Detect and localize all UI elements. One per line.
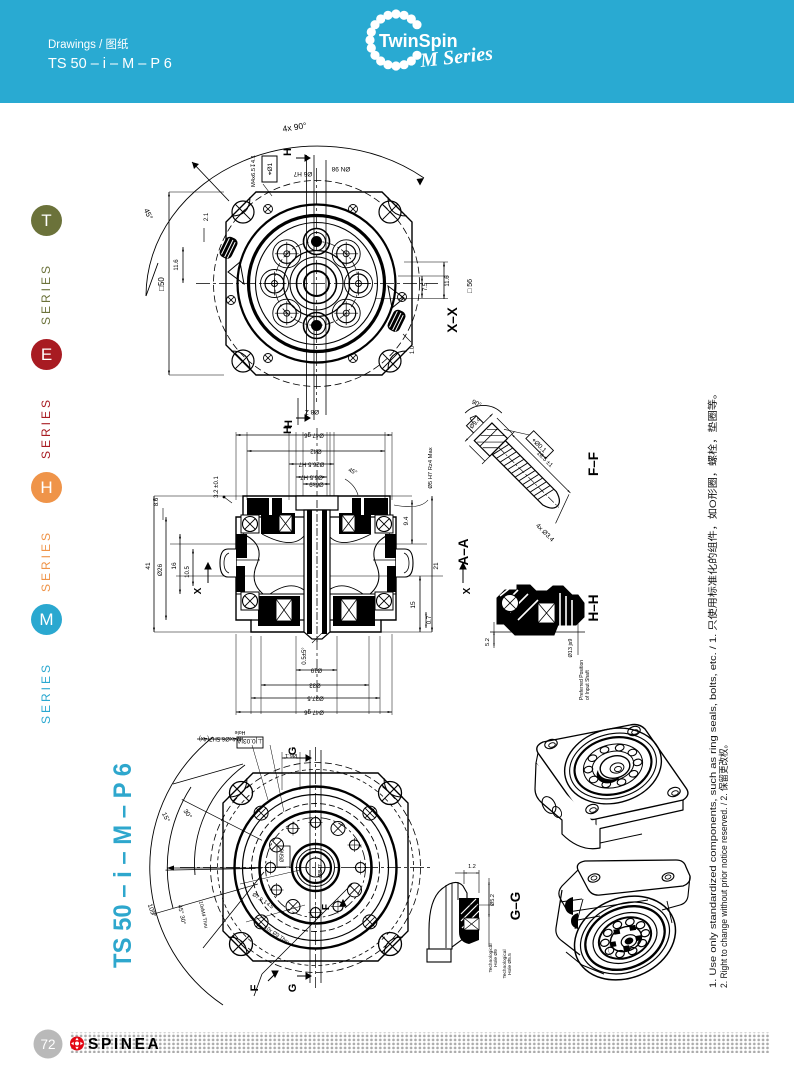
svg-text:Ø5.2: Ø5.2 <box>490 894 496 906</box>
svg-text:7.5: 7.5 <box>423 282 429 291</box>
svg-text:X: X <box>193 587 204 594</box>
svg-text:Ø8 Z: Ø8 Z <box>305 408 319 415</box>
svg-text:8.6: 8.6 <box>154 497 160 506</box>
svg-text:G: G <box>287 984 299 993</box>
svg-text:10xM4 Thru: 10xM4 Thru <box>197 901 209 929</box>
svg-text:H: H <box>283 420 295 428</box>
svg-text:M4x6.5↧4.1: M4x6.5↧4.1 <box>250 155 257 187</box>
svg-text:3.2 ±0.1: 3.2 ±0.1 <box>214 476 220 498</box>
svg-text:45° 30°: 45° 30° <box>176 904 186 925</box>
svg-text:11.6: 11.6 <box>445 275 451 287</box>
svg-text:⌖Ø1: ⌖Ø1 <box>267 162 274 175</box>
svg-text:16: 16 <box>171 562 178 570</box>
svg-text:15°: 15° <box>160 811 172 824</box>
svg-text:Hole: Hole <box>235 729 246 735</box>
svg-text:Ø13 js9: Ø13 js9 <box>568 639 574 658</box>
svg-text:1. Use only standardized compo: 1. Use only standardized components, suc… <box>707 388 719 988</box>
svg-text:10x Ø3 Thru: 10x Ø3 Thru <box>263 925 290 946</box>
svg-text:2.1: 2.1 <box>204 212 210 221</box>
svg-text:5.2: 5.2 <box>485 638 491 646</box>
svg-text:Ø33: Ø33 <box>309 682 321 688</box>
svg-text:105°: 105° <box>146 903 158 919</box>
svg-text:Ø9.4: Ø9.4 <box>469 416 483 430</box>
svg-text:41: 41 <box>145 562 152 570</box>
svg-text:F: F <box>249 984 261 991</box>
svg-text:G–G: G–G <box>508 892 523 921</box>
svg-text:30°: 30° <box>182 808 194 821</box>
svg-text:4x 90°: 4x 90° <box>282 120 307 134</box>
svg-text:Ø47 g6: Ø47 g6 <box>303 432 323 438</box>
svg-text:10.5: 10.5 <box>185 566 191 578</box>
svg-text:2. Right to change without pri: 2. Right to change without prior notice … <box>718 740 730 988</box>
svg-text:ØN 98: ØN 98 <box>331 165 350 172</box>
svg-text:72: 72 <box>40 1037 55 1052</box>
svg-text:21: 21 <box>433 562 440 570</box>
svg-text:of Input Shaft: of Input Shaft <box>585 670 591 700</box>
svg-text:A–A: A–A <box>456 538 471 565</box>
svg-text:Ø6 H7: Ø6 H7 <box>293 170 312 177</box>
svg-text:SPINEA: SPINEA <box>88 1036 161 1053</box>
svg-text:Ø47 g6: Ø47 g6 <box>303 709 323 715</box>
svg-text:0.7: 0.7 <box>427 615 433 624</box>
svg-text:Ø8H7: Ø8H7 <box>318 864 324 878</box>
svg-text:Ø6.1: Ø6.1 <box>285 752 297 758</box>
svg-text:1.2: 1.2 <box>468 864 476 870</box>
svg-text:□ 56: □ 56 <box>467 279 474 293</box>
svg-text:4x Ø3.4: 4x Ø3.4 <box>534 522 555 543</box>
svg-text:45°: 45° <box>347 467 358 477</box>
svg-text:45°: 45° <box>142 207 155 221</box>
svg-text:⊥|0.03|A: ⊥|0.03|A <box>236 737 263 744</box>
svg-text:Ø26: Ø26 <box>157 563 164 576</box>
svg-text:X: X <box>462 587 473 594</box>
svg-text:Ø42: Ø42 <box>310 448 322 454</box>
svg-text:0.5±5°: 0.5±5° <box>302 647 308 665</box>
svg-text:Ø19: Ø19 <box>310 667 322 673</box>
svg-text:11.6: 11.6 <box>174 259 180 271</box>
svg-text:1.0: 1.0 <box>410 345 416 354</box>
svg-text:□50: □50 <box>157 277 166 291</box>
svg-text:Ø5h6: Ø5h6 <box>280 849 286 862</box>
svg-text:Ø26.5 H7: Ø26.5 H7 <box>298 461 324 467</box>
svg-text:F: F <box>321 904 332 910</box>
svg-text:F–F: F–F <box>586 452 601 476</box>
svg-text:Hole Ø5.5: Hole Ø5.5 <box>507 953 513 975</box>
svg-text:Ø6k9: Ø6k9 <box>309 481 324 487</box>
svg-text:Ø37.5: Ø37.5 <box>307 695 324 701</box>
svg-text:15: 15 <box>410 601 417 609</box>
svg-text:Ø5 H7 Rz4 Max: Ø5 H7 Rz4 Max <box>428 447 434 488</box>
svg-text:X–X: X–X <box>445 307 460 333</box>
svg-text:Hole Ø9: Hole Ø9 <box>493 949 499 967</box>
svg-text:H–H: H–H <box>586 594 601 621</box>
svg-text:9.4: 9.4 <box>403 516 410 525</box>
